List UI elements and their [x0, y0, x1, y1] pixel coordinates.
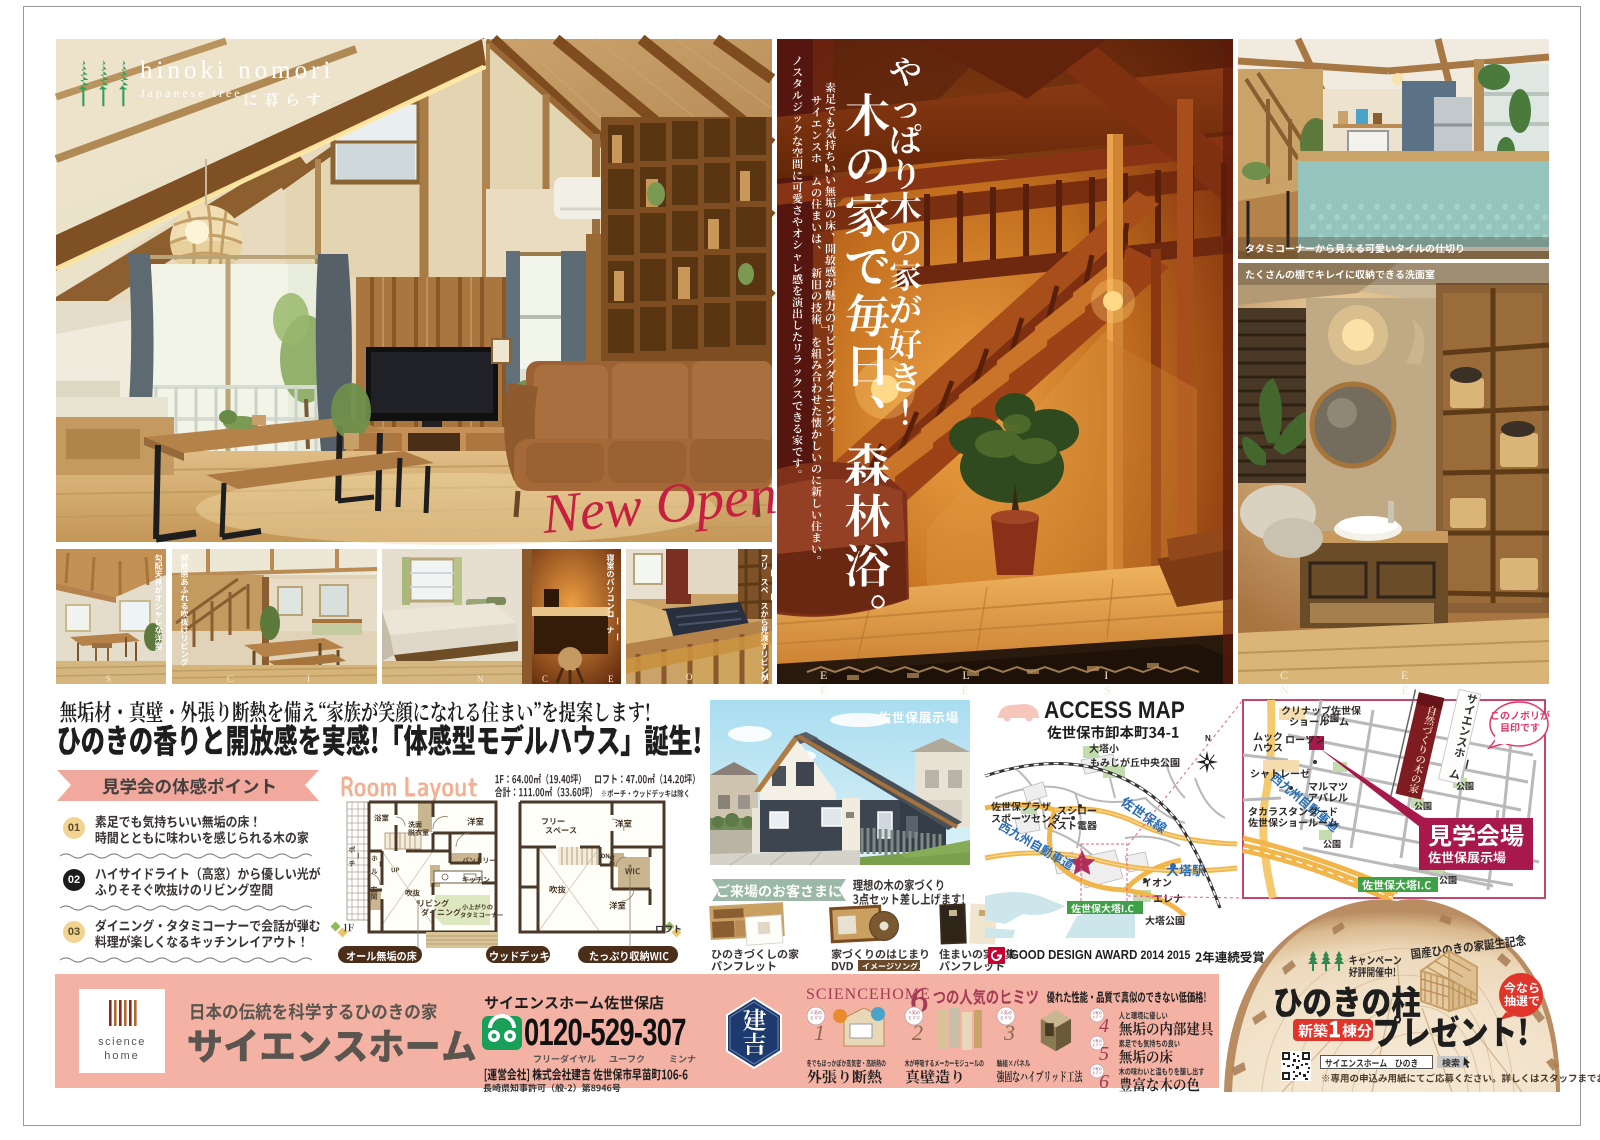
svg-text:3: 3: [1003, 1020, 1015, 1045]
svg-text:1: 1: [814, 1020, 825, 1045]
svg-text:C: C: [542, 674, 548, 684]
svg-text:science: science: [98, 1036, 146, 1048]
svg-text:N: N: [477, 674, 484, 684]
svg-text:S: S: [106, 674, 111, 684]
svg-text:2: 2: [912, 1020, 923, 1045]
svg-text:5: 5: [1099, 1043, 1109, 1065]
svg-text:C: C: [227, 674, 233, 684]
svg-text:6: 6: [1099, 1071, 1109, 1093]
svg-text:4: 4: [1099, 1015, 1109, 1037]
svg-text:home: home: [104, 1050, 140, 1062]
svg-text:O: O: [686, 672, 693, 682]
svg-text:E: E: [608, 674, 614, 684]
svg-text:I: I: [307, 674, 310, 684]
